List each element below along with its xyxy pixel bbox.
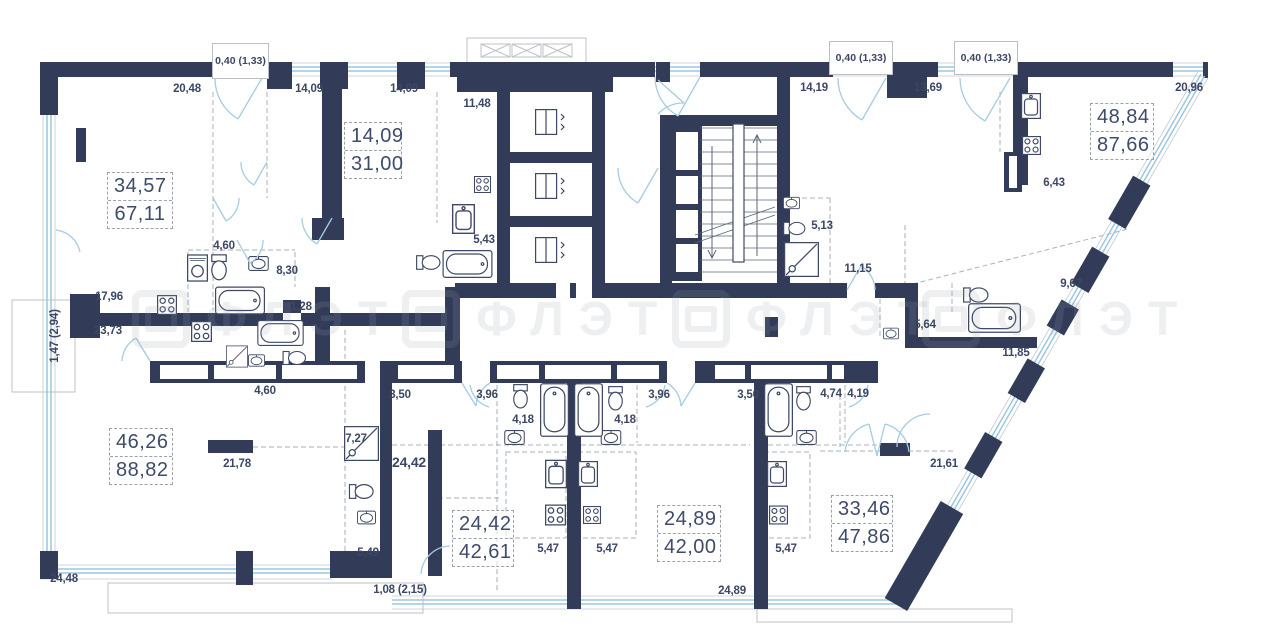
total-area: 31,00 [345, 150, 401, 178]
toilet-icon [797, 387, 811, 410]
basin-icon [505, 431, 525, 445]
dim-label: 4,74 [820, 388, 842, 400]
total-area: 87,66 [1091, 131, 1153, 159]
dim-label: 11,15 [844, 263, 871, 275]
basin-icon [797, 431, 817, 445]
dim-label: 9,67 [1060, 278, 1082, 290]
basin-icon [249, 257, 269, 271]
dim-label: 3,96 [476, 389, 498, 401]
window-dim-box: 0,40 (1,33) [954, 41, 1018, 75]
dim-label: 4,60 [254, 385, 276, 397]
basin-icon [248, 355, 264, 366]
area-box-apartment-2: 14,09 31,00 [344, 122, 402, 179]
shower-icon [785, 243, 819, 277]
area-box-apartment-4: 46,26 88,82 [109, 428, 173, 485]
dim-label: 21,78 [223, 458, 251, 470]
dim-label: 11,48 [463, 98, 490, 110]
dim-label: 1,28 [290, 301, 312, 313]
dim-label: 14,09 [390, 83, 418, 95]
dim-label: 5,13 [811, 220, 833, 232]
area-box-apartment-5: 24,42 42,61 [452, 510, 514, 567]
washer-icon [188, 255, 208, 281]
stove-icon [770, 506, 788, 524]
total-area: 42,00 [658, 533, 720, 561]
dim-label: 24,89 [718, 585, 746, 597]
bathtub-icon [216, 287, 265, 314]
dim-label: 24,48 [50, 573, 78, 585]
dim-label: 21,61 [930, 458, 958, 470]
dim-label: 17,96 [95, 291, 123, 303]
dim-label: 4,18 [614, 414, 636, 426]
kitchen-sink-icon [546, 460, 567, 487]
toilet-icon [609, 387, 623, 410]
stove-icon [584, 507, 601, 524]
elevator-icon [536, 110, 564, 135]
dim-label: 5,47 [537, 543, 559, 555]
dim-label: 4,18 [512, 414, 534, 426]
dim-label: 8,30 [276, 265, 298, 277]
bathtub-icon [575, 384, 603, 437]
area-box-apartment-1: 34,57 67,11 [107, 172, 173, 229]
toilet-icon [784, 222, 805, 234]
basin-icon [883, 328, 898, 339]
area-box-apartment-3: 48,84 87,66 [1090, 103, 1154, 160]
elevator-icon [536, 238, 564, 263]
basin-icon [601, 431, 621, 445]
kitchen-sink-icon [1022, 94, 1041, 119]
dim-label: 6,43 [1043, 177, 1065, 189]
kitchen-sink-icon [579, 462, 598, 487]
living-area: 24,89 [658, 506, 720, 533]
kitchen-sink-icon [453, 205, 475, 234]
area-box-apartment-6: 24,89 42,00 [657, 505, 721, 562]
stove-icon [546, 505, 566, 525]
total-area: 47,86 [832, 523, 892, 551]
dim-label: 3,50 [737, 389, 759, 401]
kitchen-sink-icon [768, 462, 787, 487]
dim-label: 13,69 [914, 82, 942, 94]
elevator-icon [536, 174, 564, 199]
total-area: 88,82 [110, 456, 172, 484]
living-area: 34,57 [108, 173, 172, 200]
balcony-bottom [757, 609, 1012, 622]
dim-label: 5,43 [473, 234, 495, 246]
dim-label: 20,96 [1175, 82, 1203, 94]
dim-label: 4,19 [847, 388, 869, 400]
staircase [695, 124, 777, 272]
dim-label: 1,08 (2,15) [373, 584, 426, 596]
stove-icon [1023, 137, 1041, 155]
dim-label: 20,48 [173, 83, 201, 95]
dim-label: 5,47 [775, 543, 797, 555]
dim-label: 7,27 [345, 433, 367, 445]
dim-label: 3,96 [648, 389, 670, 401]
toilet-icon [417, 256, 440, 270]
stove-icon [475, 177, 491, 193]
bathtub-icon [969, 304, 1021, 332]
dim-label: 11,85 [1002, 347, 1029, 359]
toilet-icon [964, 288, 988, 302]
living-area: 46,26 [110, 429, 172, 456]
dim-label: 14,19 [800, 82, 828, 94]
bathtub-icon [765, 384, 793, 437]
area-box-apartment-7: 33,46 47,86 [831, 495, 893, 552]
dim-label: 24,42 [392, 454, 426, 470]
dim-label: 5,49 [357, 547, 379, 559]
basin-icon [783, 197, 799, 208]
living-area: 14,09 [345, 123, 401, 150]
dim-label: 23,73 [94, 325, 122, 337]
toilet-icon [349, 485, 373, 499]
window-dim-box: 0,40 (1,33) [829, 41, 893, 75]
toilet-icon [212, 255, 226, 280]
stove-icon [158, 296, 177, 315]
living-area: 48,84 [1091, 104, 1153, 131]
floorplan-drawing [0, 0, 1280, 640]
balcony-left [12, 300, 75, 392]
toilet-icon [514, 385, 528, 408]
dim-label: 5,64 [914, 319, 936, 331]
bathtub-icon [541, 384, 569, 437]
bathtub-icon [443, 251, 492, 278]
bathtub-icon [258, 321, 303, 346]
living-area: 33,46 [832, 496, 892, 523]
stove-icon [192, 322, 212, 342]
shower-icon [226, 346, 247, 367]
living-area: 24,42 [453, 511, 513, 538]
window-dim-box: 0,40 (1,33) [212, 43, 269, 79]
dim-label: 3,50 [389, 389, 411, 401]
total-area: 42,61 [453, 538, 513, 566]
total-area: 67,11 [108, 200, 172, 228]
dim-label: 5,47 [596, 543, 618, 555]
dim-label: 4,60 [213, 240, 235, 252]
dim-label: 1,47 (2,94) [49, 309, 61, 362]
toilet-icon [283, 352, 305, 365]
basin-icon [358, 511, 376, 524]
floor-plan: ФЛЭТ ФЛЭТ ФЛЭТ ФЛЭТ 0,40 (1,33) 0,40 (1,… [0, 0, 1280, 640]
dim-label: 14,09 [295, 83, 323, 95]
